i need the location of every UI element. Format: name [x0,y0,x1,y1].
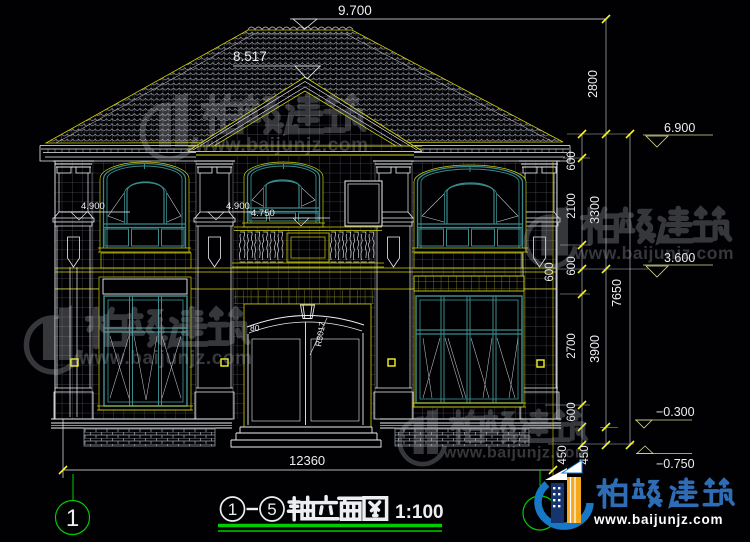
svg-text:www.baijunjz.com: www.baijunjz.com [443,444,590,461]
svg-text:1: 1 [228,500,237,519]
svg-text:600: 600 [566,151,578,170]
svg-text:4.750: 4.750 [251,208,275,219]
svg-text:3900: 3900 [588,335,602,363]
svg-text:www.baijunjz.com: www.baijunjz.com [593,512,723,527]
svg-text:2700: 2700 [566,333,578,359]
svg-text:−0.300: −0.300 [656,405,695,419]
svg-text:80: 80 [250,323,260,333]
svg-text:8.517: 8.517 [233,49,267,64]
svg-text:5: 5 [267,500,276,519]
svg-text:4.900: 4.900 [226,201,250,212]
svg-text:www.baijunjz.com: www.baijunjz.com [573,243,734,263]
svg-text:1: 1 [66,505,79,532]
svg-text:2800: 2800 [586,70,600,98]
svg-text:www.baijunjz.com: www.baijunjz.com [78,348,253,369]
svg-text:6.900: 6.900 [664,121,695,135]
svg-text:1:100: 1:100 [395,502,444,523]
svg-text:9.700: 9.700 [338,3,372,18]
svg-text:www.baijunjz.com: www.baijunjz.com [194,135,369,156]
svg-text:7650: 7650 [610,279,624,307]
svg-text:4.900: 4.900 [81,201,105,212]
svg-text:12360: 12360 [289,453,325,468]
svg-text:−0.750: −0.750 [656,457,695,471]
